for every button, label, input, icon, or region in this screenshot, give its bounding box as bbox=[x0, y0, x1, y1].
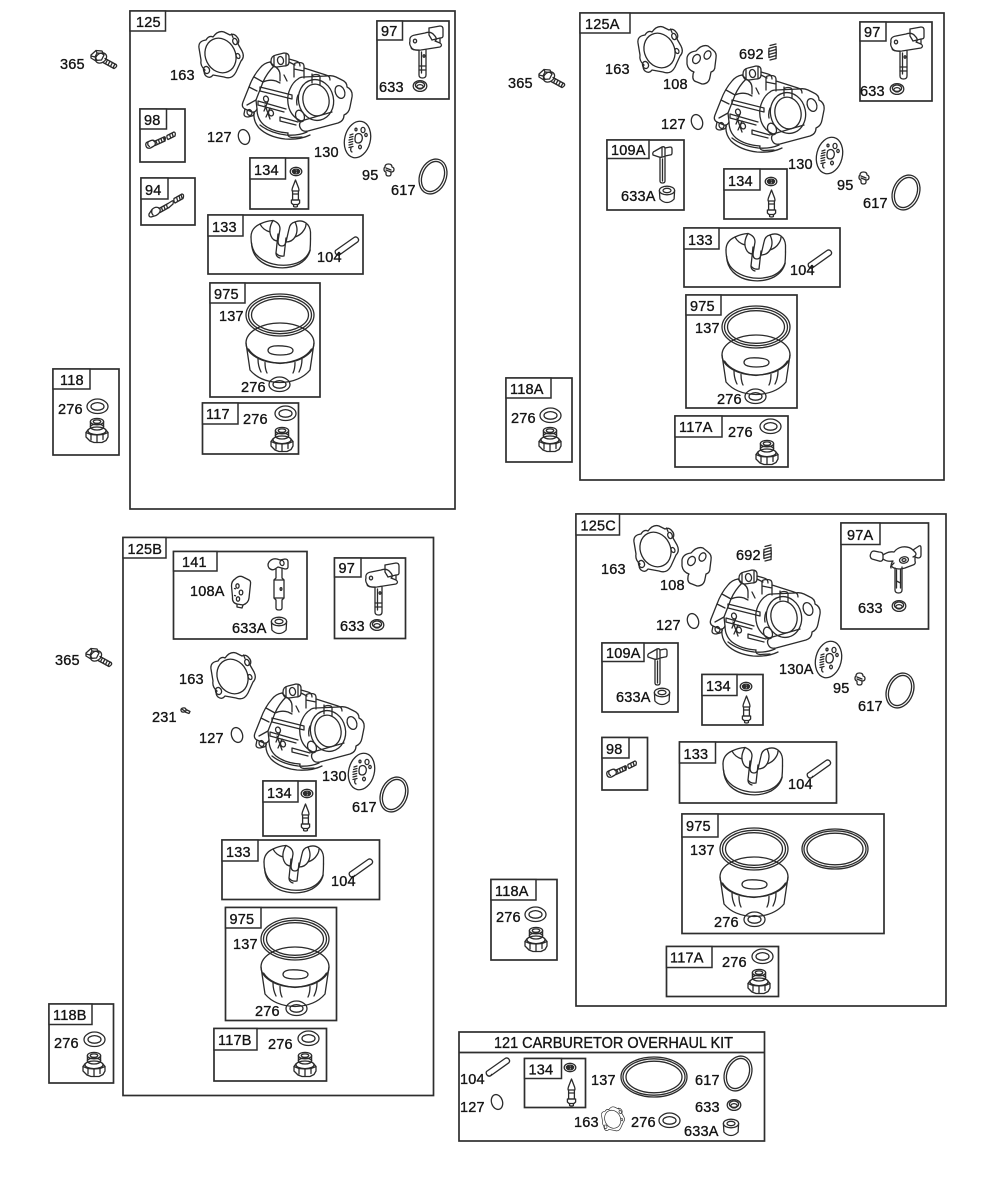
svg-text:125C: 125C bbox=[581, 519, 616, 535]
svg-text:365: 365 bbox=[55, 653, 80, 669]
svg-text:163: 163 bbox=[574, 1115, 599, 1131]
svg-text:125A: 125A bbox=[585, 17, 620, 33]
svg-text:95: 95 bbox=[833, 681, 850, 697]
svg-text:118: 118 bbox=[60, 373, 84, 389]
svg-text:617: 617 bbox=[391, 183, 416, 199]
svg-text:276: 276 bbox=[255, 1004, 280, 1020]
svg-text:104: 104 bbox=[317, 250, 342, 266]
svg-text:98: 98 bbox=[606, 742, 623, 758]
svg-text:633A: 633A bbox=[684, 1124, 719, 1140]
svg-text:633: 633 bbox=[340, 619, 365, 635]
svg-text:276: 276 bbox=[717, 392, 742, 408]
svg-text:133: 133 bbox=[212, 220, 237, 236]
svg-text:130: 130 bbox=[322, 769, 347, 785]
svg-text:137: 137 bbox=[695, 321, 720, 337]
svg-text:137: 137 bbox=[219, 309, 244, 325]
svg-text:117: 117 bbox=[206, 407, 230, 423]
svg-text:127: 127 bbox=[460, 1100, 485, 1116]
svg-text:276: 276 bbox=[268, 1037, 293, 1053]
svg-text:276: 276 bbox=[722, 955, 747, 971]
svg-text:633: 633 bbox=[379, 80, 404, 96]
svg-text:104: 104 bbox=[788, 777, 813, 793]
svg-text:975: 975 bbox=[214, 287, 239, 303]
svg-text:133: 133 bbox=[226, 845, 251, 861]
svg-text:137: 137 bbox=[233, 937, 258, 953]
svg-text:127: 127 bbox=[199, 731, 224, 747]
svg-text:276: 276 bbox=[511, 411, 536, 427]
svg-text:163: 163 bbox=[605, 62, 630, 78]
svg-text:276: 276 bbox=[496, 910, 521, 926]
svg-text:276: 276 bbox=[714, 915, 739, 931]
svg-text:163: 163 bbox=[179, 672, 204, 688]
svg-text:276: 276 bbox=[631, 1115, 656, 1131]
svg-text:127: 127 bbox=[661, 117, 686, 133]
svg-text:617: 617 bbox=[695, 1073, 720, 1089]
svg-text:127: 127 bbox=[656, 618, 681, 634]
svg-text:231: 231 bbox=[152, 710, 177, 726]
svg-text:633: 633 bbox=[858, 601, 883, 617]
svg-text:134: 134 bbox=[529, 1063, 554, 1079]
svg-text:118A: 118A bbox=[510, 382, 544, 398]
svg-text:109A: 109A bbox=[606, 646, 641, 662]
svg-text:108A: 108A bbox=[190, 584, 225, 600]
svg-text:137: 137 bbox=[591, 1073, 616, 1089]
svg-text:163: 163 bbox=[601, 562, 626, 578]
svg-text:97: 97 bbox=[339, 561, 356, 577]
svg-text:104: 104 bbox=[331, 874, 356, 890]
svg-text:127: 127 bbox=[207, 130, 232, 146]
svg-text:276: 276 bbox=[243, 412, 268, 428]
svg-text:97A: 97A bbox=[847, 528, 874, 544]
svg-text:118A: 118A bbox=[495, 884, 529, 900]
svg-text:130: 130 bbox=[314, 145, 339, 161]
svg-text:276: 276 bbox=[58, 402, 83, 418]
svg-text:134: 134 bbox=[267, 786, 292, 802]
svg-text:633A: 633A bbox=[616, 690, 651, 706]
svg-text:133: 133 bbox=[688, 233, 713, 249]
svg-text:276: 276 bbox=[728, 425, 753, 441]
svg-text:134: 134 bbox=[706, 679, 731, 695]
svg-text:130A: 130A bbox=[779, 662, 814, 678]
svg-text:94: 94 bbox=[145, 183, 162, 199]
svg-text:276: 276 bbox=[54, 1036, 79, 1052]
svg-text:633: 633 bbox=[695, 1100, 720, 1116]
svg-text:104: 104 bbox=[460, 1072, 485, 1088]
svg-text:617: 617 bbox=[863, 196, 888, 212]
svg-text:117A: 117A bbox=[670, 951, 704, 967]
svg-text:125: 125 bbox=[136, 15, 161, 31]
svg-text:633: 633 bbox=[860, 84, 885, 100]
svg-text:633A: 633A bbox=[621, 189, 656, 205]
svg-text:692: 692 bbox=[739, 47, 764, 63]
svg-text:95: 95 bbox=[837, 178, 854, 194]
svg-text:692: 692 bbox=[736, 548, 761, 564]
svg-text:137: 137 bbox=[690, 843, 715, 859]
svg-text:97: 97 bbox=[381, 24, 398, 40]
svg-text:617: 617 bbox=[858, 699, 883, 715]
svg-text:109A: 109A bbox=[611, 143, 646, 159]
svg-text:134: 134 bbox=[728, 174, 753, 190]
svg-text:125B: 125B bbox=[128, 542, 163, 558]
svg-text:121 CARBURETOR OVERHAUL KIT: 121 CARBURETOR OVERHAUL KIT bbox=[494, 1035, 733, 1052]
svg-text:95: 95 bbox=[362, 168, 379, 184]
svg-text:163: 163 bbox=[170, 68, 195, 84]
svg-text:617: 617 bbox=[352, 800, 377, 816]
svg-text:98: 98 bbox=[144, 113, 161, 129]
svg-text:104: 104 bbox=[790, 263, 815, 279]
svg-text:97: 97 bbox=[864, 25, 881, 41]
svg-text:141: 141 bbox=[182, 555, 207, 571]
svg-text:975: 975 bbox=[230, 912, 255, 928]
svg-text:108: 108 bbox=[660, 578, 685, 594]
svg-text:975: 975 bbox=[690, 299, 715, 315]
svg-text:975: 975 bbox=[686, 819, 711, 835]
svg-text:365: 365 bbox=[60, 57, 85, 73]
svg-text:134: 134 bbox=[254, 163, 279, 179]
svg-text:108: 108 bbox=[663, 77, 688, 93]
svg-text:365: 365 bbox=[508, 76, 533, 92]
svg-text:276: 276 bbox=[241, 380, 266, 396]
svg-text:117A: 117A bbox=[679, 420, 713, 436]
svg-text:117B: 117B bbox=[218, 1033, 252, 1049]
svg-text:633A: 633A bbox=[232, 621, 267, 637]
svg-text:133: 133 bbox=[684, 747, 709, 763]
svg-text:130: 130 bbox=[788, 157, 813, 173]
svg-text:118B: 118B bbox=[53, 1008, 87, 1024]
